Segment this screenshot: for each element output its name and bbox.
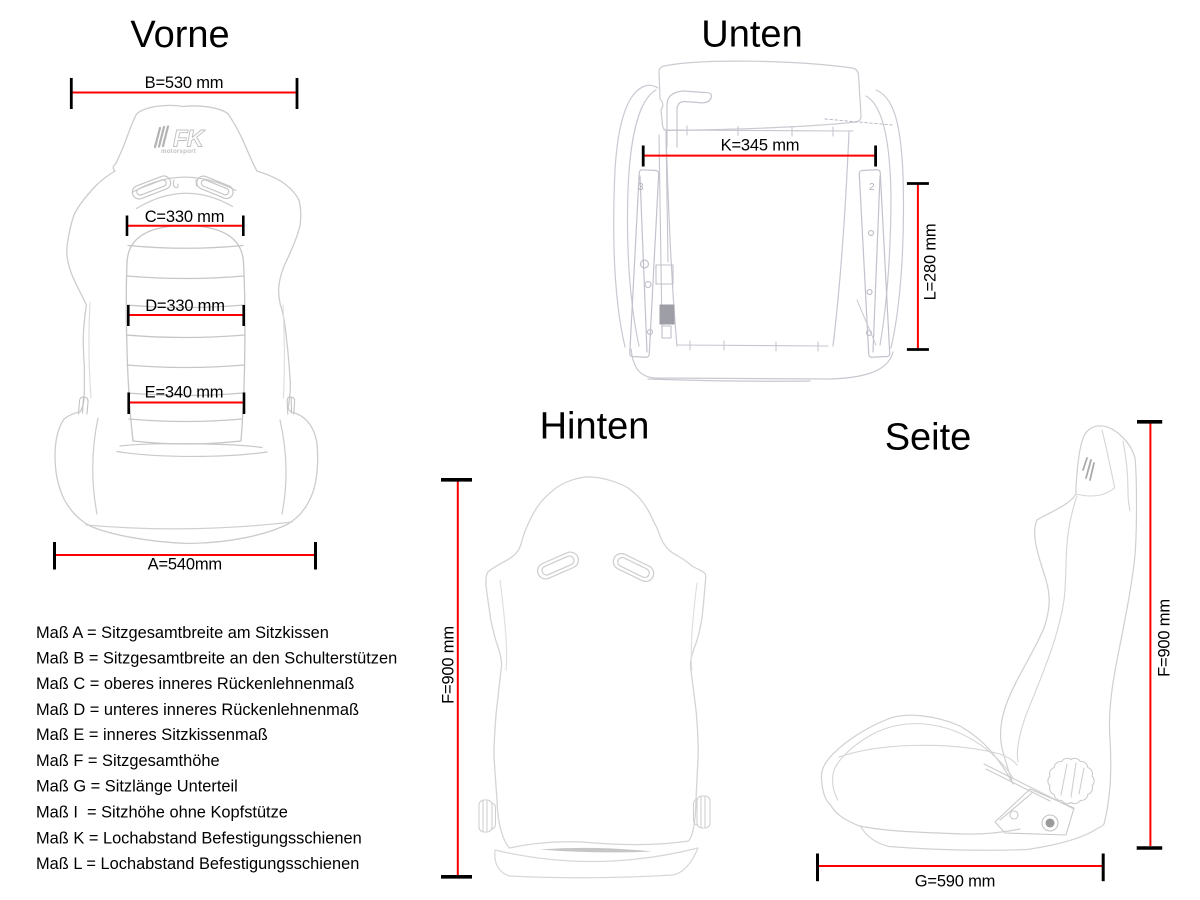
svg-text:L=280 mm: L=280 mm — [922, 224, 940, 301]
svg-text:Hinten: Hinten — [540, 406, 650, 448]
svg-text:Maß G = Sitzlänge Unterteil: Maß G = Sitzlänge Unterteil — [36, 778, 238, 796]
svg-text:Maß F = Sitzgesamthöhe: Maß F = Sitzgesamthöhe — [36, 752, 220, 770]
svg-text:Maß E = inneres Sitzkissenmaß: Maß E = inneres Sitzkissenmaß — [36, 726, 268, 744]
svg-text:Seite: Seite — [885, 417, 972, 459]
svg-text:Maß I = Sitzhöhe ohne Kopfstü: Maß I = Sitzhöhe ohne Kopfstütze — [36, 803, 288, 821]
svg-text:A=540mm: A=540mm — [148, 556, 222, 574]
svg-text:Maß B = Sitzgesamtbreite an de: Maß B = Sitzgesamtbreite an den Schulter… — [36, 650, 397, 668]
svg-text:Unten: Unten — [701, 14, 802, 56]
svg-text:2: 2 — [869, 182, 875, 193]
svg-text:K=345 mm: K=345 mm — [721, 137, 800, 155]
svg-text:Maß L = Lochabstand Befestigun: Maß L = Lochabstand Befestigungsschienen — [36, 855, 359, 873]
svg-text:motorsport: motorsport — [161, 148, 196, 155]
svg-text:F=900 mm: F=900 mm — [439, 626, 457, 704]
svg-text:Maß C = oberes inneres Rückenl: Maß C = oberes inneres Rückenlehnenmaß — [36, 675, 354, 693]
svg-text:Maß A = Sitzgesamtbreite am Si: Maß A = Sitzgesamtbreite am Sitzkissen — [36, 624, 329, 642]
svg-text:G=590 mm: G=590 mm — [915, 873, 995, 891]
svg-text:B=530 mm: B=530 mm — [145, 74, 224, 92]
svg-text:D=330 mm: D=330 mm — [145, 297, 225, 315]
svg-text:F=900 mm: F=900 mm — [1155, 599, 1173, 677]
svg-text:E=340 mm: E=340 mm — [145, 384, 224, 402]
svg-text:3: 3 — [638, 182, 644, 193]
svg-text:C=330 mm: C=330 mm — [145, 208, 225, 226]
svg-text:Maß D = unteres inneres Rücken: Maß D = unteres inneres Rückenlehnenmaß — [36, 701, 359, 719]
svg-text:Vorne: Vorne — [130, 14, 229, 56]
svg-text:Maß K = Lochabstand Befestigun: Maß K = Lochabstand Befestigungsschienen — [36, 829, 362, 847]
